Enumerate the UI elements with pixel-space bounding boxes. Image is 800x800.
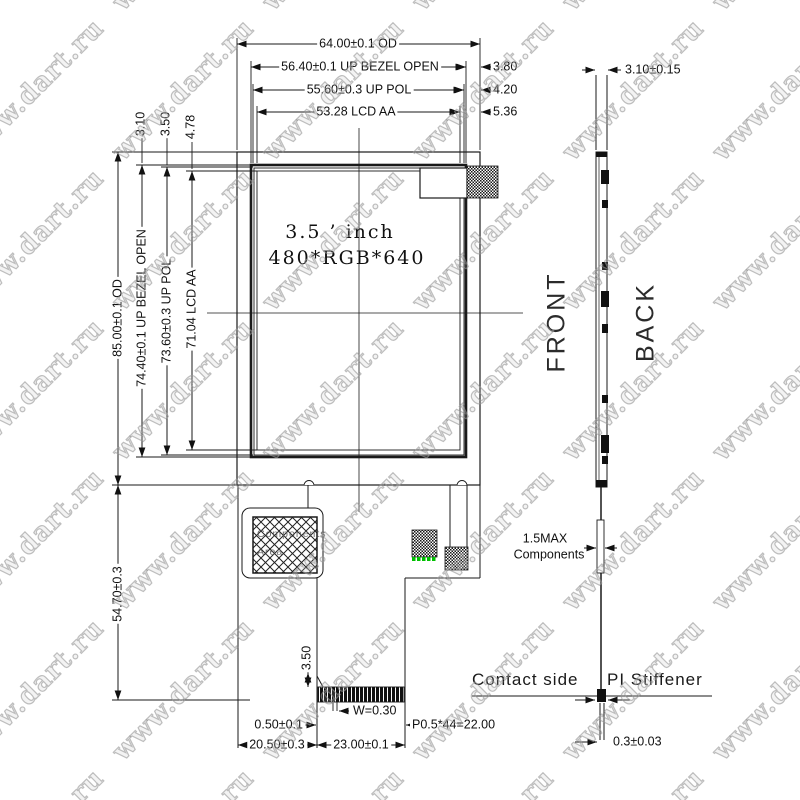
bezel-open-outline bbox=[251, 165, 466, 457]
dim-aa-width: 53.28 LCD AA bbox=[314, 105, 397, 118]
dim-offset-aa-top: 4.78 bbox=[184, 113, 197, 141]
corner-hatched-tab bbox=[467, 166, 498, 198]
dim-offset-bezel-right: 3.80 bbox=[491, 60, 519, 73]
components-area-hatch bbox=[253, 517, 317, 573]
dimension-lines bbox=[118, 44, 480, 745]
dim-tail-width: 23.00±0.1 bbox=[331, 738, 391, 751]
pi-stiffener-label: PI Stiffener bbox=[607, 670, 703, 690]
driver-ic-outline bbox=[420, 168, 467, 198]
dim-module-thickness: 3.10±0.15 bbox=[623, 63, 683, 76]
dim-offset-pol-top: 3.50 bbox=[159, 110, 172, 138]
dim-od-width: 64.00±0.1 OD bbox=[317, 37, 399, 50]
components-area-label-2: Area bbox=[257, 546, 283, 558]
dim-stiffener-thickness: 0.3±0.03 bbox=[611, 735, 664, 748]
dim-aa-height: 71.04 LCD AA bbox=[185, 267, 198, 350]
active-area-outline bbox=[257, 171, 460, 450]
dim-pol-height: 73.60±0.3 UP POL bbox=[160, 257, 173, 366]
dim-od-height: 85.00±0.1 OD bbox=[111, 277, 124, 359]
dim-contact-margin: 0.50±0.1 bbox=[252, 718, 305, 731]
dim-body-left-width: 20.50±0.3 bbox=[247, 738, 307, 751]
stiffener-end-mark bbox=[597, 689, 606, 702]
contact-side-label: Contact side bbox=[472, 670, 579, 690]
display-resolution-label: 480*RGB*640 bbox=[269, 247, 426, 269]
dim-offset-bezel-top: 3.10 bbox=[134, 110, 147, 138]
display-size-label: 3.5 ’ inch bbox=[285, 221, 395, 243]
dim-offset-aa-right: 5.36 bbox=[491, 105, 519, 118]
side-component-profile bbox=[597, 520, 604, 573]
green-component-marks bbox=[412, 557, 436, 561]
dim-contact-width: W=0.30 bbox=[351, 704, 398, 717]
fpc-notch-left bbox=[304, 481, 314, 486]
front-view-label: FRONT bbox=[543, 271, 572, 372]
fpc-notch-right bbox=[457, 481, 467, 486]
dim-tail-offset: 3.50 bbox=[300, 644, 313, 672]
dim-pol-width: 55.60±0.3 UP POL bbox=[305, 83, 414, 96]
dim-component-height-2: Components bbox=[514, 548, 585, 561]
dim-fpc-length: 54.70±0.3 bbox=[111, 564, 124, 624]
small-component-hatch-2 bbox=[445, 547, 468, 570]
contact-strip bbox=[318, 687, 404, 702]
dim-bezel-open-height: 74.40±0.1 UP BEZEL OPEN bbox=[135, 227, 148, 389]
front-view bbox=[207, 128, 523, 512]
display-outline-od bbox=[237, 152, 480, 485]
components-area-label-1: Components bbox=[257, 528, 327, 540]
side-view bbox=[472, 75, 712, 740]
back-view-label: BACK bbox=[632, 282, 661, 362]
small-component-hatch-1 bbox=[412, 530, 437, 557]
dim-component-height-1: 1.5MAX bbox=[523, 532, 567, 545]
lcd-outline-drawing: 64.00±0.1 OD 56.40±0.1 UP BEZEL OPEN 55.… bbox=[0, 0, 800, 800]
dim-offset-pol-right: 4.20 bbox=[491, 83, 519, 96]
dim-bezel-open-width: 56.40±0.1 UP BEZEL OPEN bbox=[279, 60, 441, 73]
dim-contact-pitch: P0.5*44=22.00 bbox=[410, 718, 497, 731]
